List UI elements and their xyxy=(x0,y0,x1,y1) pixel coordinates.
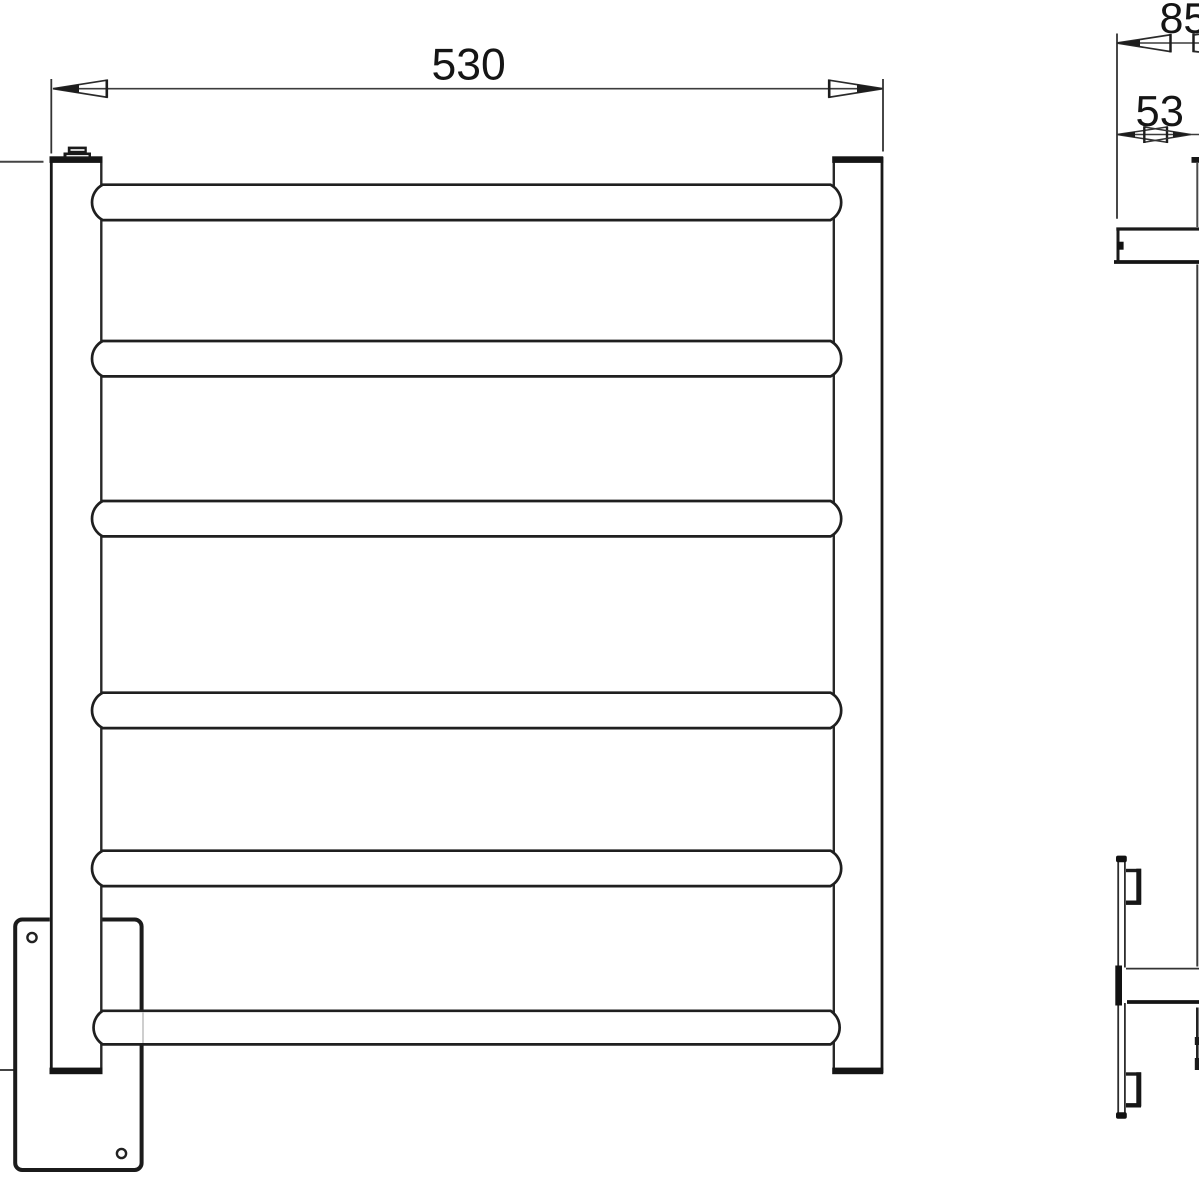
svg-text:530: 530 xyxy=(432,41,506,90)
